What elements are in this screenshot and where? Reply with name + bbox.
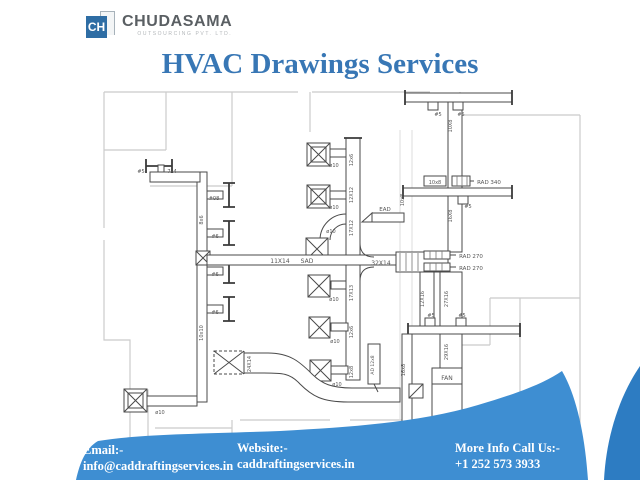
svg-text:12X16: 12X16 [420, 291, 426, 307]
footer-website-label: Website:- [237, 440, 355, 456]
svg-text:#5: #5 [427, 313, 434, 319]
svg-text:ø10: ø10 [329, 163, 338, 169]
svg-text:EAD: EAD [379, 207, 390, 213]
svg-text:17X13: 17X13 [349, 285, 355, 301]
svg-text:16x8: 16x8 [401, 364, 407, 377]
promo-page: #57x4#088x6#6#6#610x10ø1011X14SAD32X14ø1… [0, 0, 640, 480]
footer-website: Website:- caddraftingservices.in [237, 440, 355, 472]
svg-text:RAD 270: RAD 270 [459, 254, 483, 260]
svg-text:32X14: 32X14 [371, 260, 391, 267]
footer-phone: More Info Call Us:- +1 252 573 3933 [455, 440, 560, 472]
svg-text:29X16: 29X16 [444, 344, 450, 360]
svg-text:ø10: ø10 [326, 229, 335, 235]
footer-email-value: info@caddraftingservices.in [83, 458, 233, 474]
svg-text:8x6: 8x6 [199, 215, 205, 224]
svg-text:SAD: SAD [301, 258, 314, 265]
svg-text:#6: #6 [211, 272, 218, 278]
svg-text:11X14: 11X14 [270, 258, 290, 265]
svg-text:24X14: 24X14 [247, 356, 253, 372]
svg-text:#6: #6 [211, 234, 218, 240]
logo-monogram: CH [86, 16, 107, 38]
svg-text:17X12: 17X12 [349, 220, 355, 236]
svg-text:ø10: ø10 [329, 297, 338, 303]
footer-call-label: More Info Call Us:- [455, 440, 560, 456]
svg-text:ø10: ø10 [329, 205, 338, 211]
footer-email-label: Email:- [83, 442, 233, 458]
svg-text:10x8: 10x8 [429, 180, 442, 186]
svg-text:RAD 270: RAD 270 [459, 266, 483, 272]
svg-text:ø10: ø10 [332, 382, 341, 388]
svg-text:#08: #08 [209, 196, 220, 202]
svg-text:12x6: 12x6 [349, 154, 355, 167]
svg-text:7x4: 7x4 [167, 169, 176, 175]
svg-text:AD 12x8: AD 12x8 [370, 355, 376, 374]
footer-website-value: caddraftingservices.in [237, 456, 355, 472]
svg-text:10X8: 10X8 [448, 120, 454, 133]
svg-text:#5: #5 [464, 204, 471, 210]
brand-text: CHUDASAMA OUTSOURCING PVT. LTD. [122, 13, 232, 37]
svg-text:RAD 340: RAD 340 [477, 180, 501, 186]
svg-text:12X12: 12X12 [349, 187, 355, 203]
svg-text:10x8: 10x8 [400, 194, 406, 207]
footer-email: Email:- info@caddraftingservices.in [83, 442, 233, 474]
svg-text:#5: #5 [458, 313, 465, 319]
svg-text:ø10: ø10 [330, 339, 339, 345]
brand-tagline: OUTSOURCING PVT. LTD. [122, 31, 232, 37]
page-title: HVAC Drawings Services [0, 48, 640, 81]
brand-logo: CH CHUDASAMA OUTSOURCING PVT. LTD. [86, 11, 232, 39]
brand-logo-icon: CH [86, 11, 116, 39]
svg-text:16X8: 16X8 [448, 210, 454, 223]
brand-name: CHUDASAMA [122, 13, 232, 30]
svg-text:ø10: ø10 [155, 410, 164, 416]
footer-phone-value: +1 252 573 3933 [455, 456, 560, 472]
svg-text:#6: #6 [211, 310, 218, 316]
svg-text:#5: #5 [457, 112, 464, 118]
svg-text:10x10: 10x10 [199, 325, 205, 341]
svg-text:#5: #5 [434, 112, 441, 118]
svg-text:27X16: 27X16 [444, 291, 450, 307]
svg-text:12x6: 12x6 [349, 326, 355, 339]
svg-text:#5: #5 [137, 169, 144, 175]
svg-text:FAN: FAN [441, 375, 453, 382]
svg-text:12x8: 12x8 [349, 366, 355, 379]
